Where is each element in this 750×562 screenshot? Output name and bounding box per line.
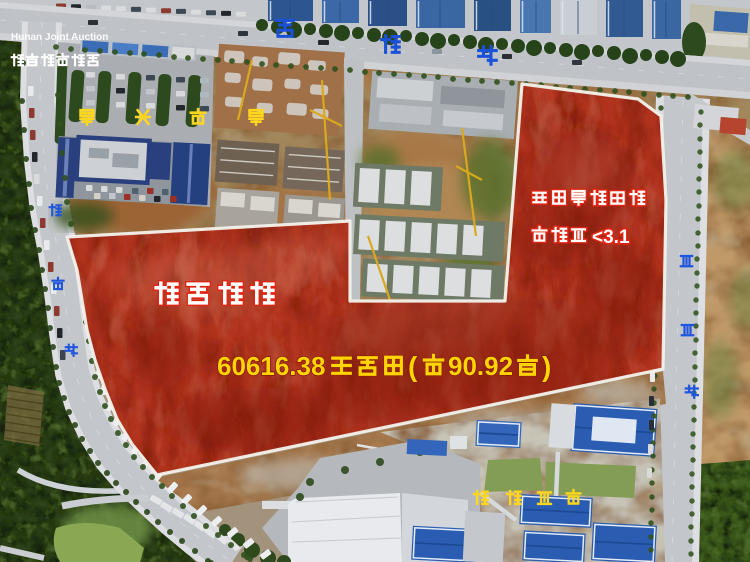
svg-text:<3.1: <3.1 (592, 227, 630, 248)
svg-text:90.92: 90.92 (448, 351, 513, 381)
svg-text:60616.38: 60616.38 (217, 351, 325, 381)
svg-text:(: ( (408, 351, 418, 382)
svg-text:Hunan Joint Auction: Hunan Joint Auction (11, 32, 108, 43)
svg-text:): ) (542, 351, 551, 382)
